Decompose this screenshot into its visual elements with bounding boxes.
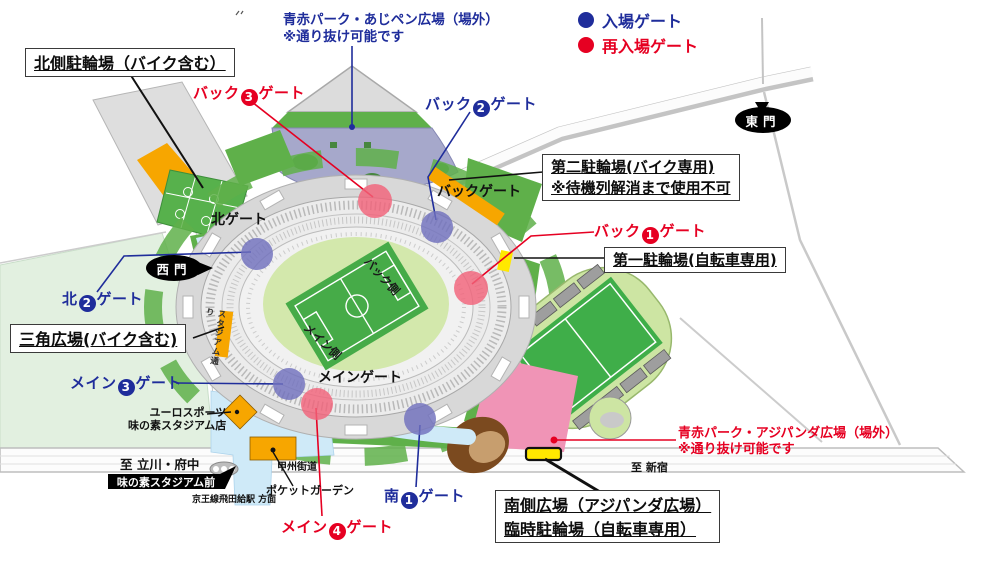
north-bike-parking-box: 北側駐輪場（バイク含む） [25, 48, 235, 77]
gate-dot-back1 [454, 271, 488, 305]
second-bike-parking-box: 第二駐輪場(バイク専用) ※待機列解消まで使用不可 [542, 154, 740, 201]
label-north2-gate: 北2ゲート [62, 291, 143, 312]
round-building [589, 397, 631, 439]
label-euro-sports: ユーロスポーツ 味の素スタジアム店 [128, 407, 226, 432]
south-plaza-note: 青赤パーク・アジパンダ広場（場外） ※通り抜け可能です [678, 426, 898, 459]
entry-gate-dot-icon [578, 12, 594, 28]
east-gate-oval: 東門 [735, 107, 791, 133]
label-main3-gate: メイン3ゲート [70, 375, 182, 396]
label-back2-gate: バック2ゲート [425, 96, 537, 117]
back2-number-badge: 2 [473, 100, 490, 117]
temp-bicycle-parking-marker [526, 448, 561, 460]
north2-number-badge: 2 [79, 295, 96, 312]
label-back-gate: バックゲート [437, 184, 521, 200]
main3-number-badge: 3 [118, 379, 135, 396]
legend-reentry-gate: 再入場ゲート [578, 33, 698, 57]
label-keio-line: 京王線飛田給駅 方面 [192, 495, 276, 505]
north-plaza-note: 青赤パーク・あじペン広場（場外） ※通り抜け可能です [283, 12, 499, 46]
south1-number-badge: 1 [401, 492, 418, 509]
label-north-gate: 北ゲート [211, 212, 267, 228]
label-to-shinjuku: 至 新宿 [631, 462, 668, 475]
label-main4-gate: メイン4ゲート [281, 519, 393, 540]
gate-dot-back3 [358, 184, 392, 218]
first-bicycle-parking-box: 第一駐輪場(自転車専用) [604, 247, 786, 273]
back1-number-badge: 1 [642, 227, 659, 244]
label-back3-gate: バック3ゲート [193, 85, 305, 106]
label-to-tachikawa: 至 立川・府中 [120, 458, 199, 472]
gate-dot-main3 [273, 368, 305, 400]
bus-stop-banner: 味の素スタジアム前 [112, 474, 220, 489]
reentry-gate-dot-icon [578, 37, 594, 53]
entry-gate-label: 入場ゲート [602, 8, 682, 32]
label-main-gate: メインゲート [318, 370, 402, 386]
gate-dot-south1 [404, 403, 436, 435]
label-pocket-garden: ポケットガーデン [266, 485, 354, 498]
south-plaza-box: 南側広場（アジパンダ広場） 臨時駐輪場（自転車専用） [495, 490, 720, 543]
label-back1-gate: バック1ゲート [594, 223, 706, 244]
stadium-access-map: 入場ゲート 再入場ゲート 青赤パーク・あじペン広場（場外） ※通り抜け可能です … [0, 0, 1000, 563]
west-gate-oval: 西門 [146, 255, 202, 281]
label-koshu-kaido: 甲州街道 [277, 462, 317, 474]
gate-dot-north2 [241, 238, 273, 270]
legend-entry-gate: 入場ゲート [578, 8, 682, 32]
main4-number-badge: 4 [329, 523, 346, 540]
reentry-gate-label: 再入場ゲート [602, 33, 698, 57]
back3-number-badge: 3 [241, 89, 258, 106]
triangle-plaza-box: 三角広場(バイク含む) [10, 324, 186, 353]
smudge [236, 11, 243, 15]
gate-dot-back2 [421, 211, 453, 243]
label-south1-gate: 南1ゲート [384, 488, 465, 509]
gate-dot-main4 [301, 388, 333, 420]
